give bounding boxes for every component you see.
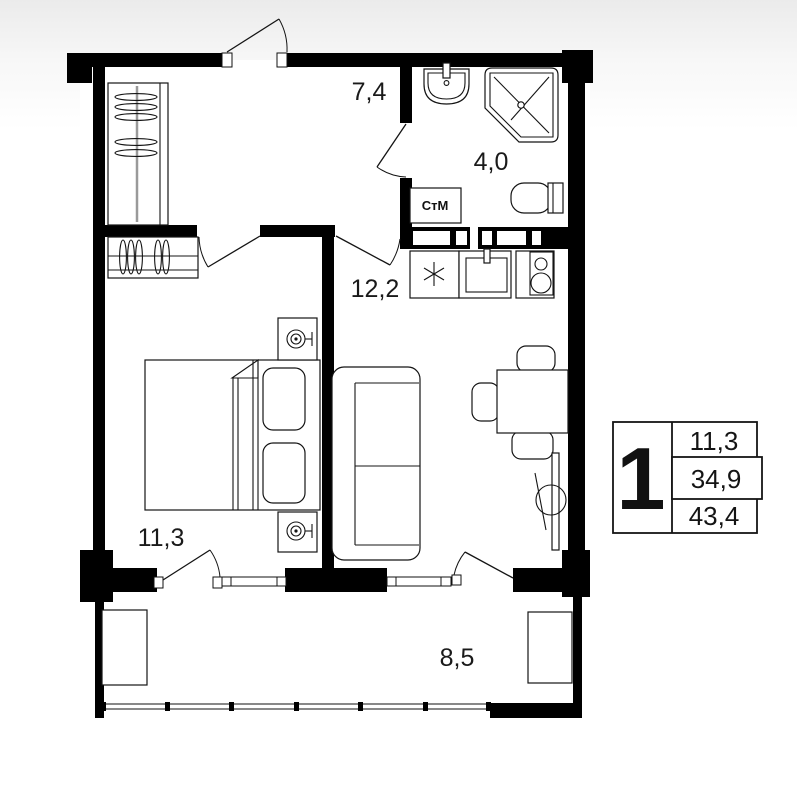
balcony-door-jamb (154, 577, 163, 588)
bottom-wall-segment-1 (105, 568, 157, 592)
living-window-icon (387, 577, 451, 586)
chair-icon (517, 346, 555, 372)
balcony-parapet (490, 703, 582, 718)
pillow-icon (263, 368, 305, 430)
bedroom-area-label: 11,3 (138, 524, 185, 552)
nightstand-icon (278, 318, 317, 360)
washing-machine-label: СтМ (422, 198, 449, 213)
sofa-icon (332, 367, 420, 560)
left-wall (93, 67, 105, 557)
legend-room-count: 1 (617, 429, 666, 528)
balcony-floor (95, 592, 582, 714)
hallway-bedroom-wall (105, 225, 197, 237)
chair-icon (472, 383, 499, 421)
legend-total-area: 43,4 (689, 501, 740, 531)
dresser-icon (108, 237, 198, 278)
entrance-jamb-left (222, 53, 232, 67)
sink-icon (424, 63, 469, 104)
legend-apartment-area: 34,9 (691, 464, 742, 494)
bottom-wall-segment-2 (285, 568, 387, 592)
hallway-living-wall (260, 225, 335, 237)
balcony-door-jamb (452, 575, 461, 585)
shaft-opening-1 (413, 231, 450, 245)
entrance-jamb-right (277, 53, 287, 67)
kitchen-living-area-label: 12,2 (351, 275, 400, 303)
toilet-icon (511, 183, 563, 213)
kitchen-counter (410, 249, 554, 298)
shaft-gap (470, 227, 478, 249)
nightstand-icon (278, 512, 317, 552)
shaft-opening-5 (532, 231, 541, 245)
entrance-door-icon (222, 19, 287, 67)
balcony-door-jamb (213, 577, 222, 588)
hallway-area-label: 7,4 (352, 78, 387, 106)
bottom-wall-segment-3 (513, 568, 562, 592)
balcony-area-label: 8,5 (440, 644, 475, 672)
balcony-cabinet-icon (528, 612, 572, 683)
top-wall-right (287, 53, 593, 67)
chair-icon (512, 431, 553, 459)
bed-icon (145, 360, 320, 510)
shaft-opening-2 (456, 231, 467, 245)
wardrobe-icon (108, 83, 168, 225)
bathroom-wall-upper (400, 67, 412, 123)
bathroom-area-label: 4,0 (474, 148, 509, 176)
shaft-opening-3 (482, 231, 492, 245)
apartment-legend: 1 11,3 34,9 43,4 (613, 422, 762, 533)
floor-plan: СтМ (0, 0, 797, 789)
legend-living-area: 11,3 (690, 426, 739, 456)
shaft-opening-4 (497, 231, 526, 245)
washing-machine-icon: СтМ (410, 188, 461, 223)
top-left-corner-block (67, 53, 92, 83)
right-wall (568, 67, 585, 552)
dining-table-icon (497, 370, 568, 433)
balcony-cabinet-icon (102, 610, 147, 685)
bottom-right-corner-block (562, 550, 590, 597)
stove-icon (516, 251, 554, 298)
kitchen-sink-icon (459, 249, 511, 298)
bedroom-window-icon (222, 577, 286, 586)
balcony-right-wall (573, 595, 582, 718)
pillow-icon (263, 443, 305, 503)
